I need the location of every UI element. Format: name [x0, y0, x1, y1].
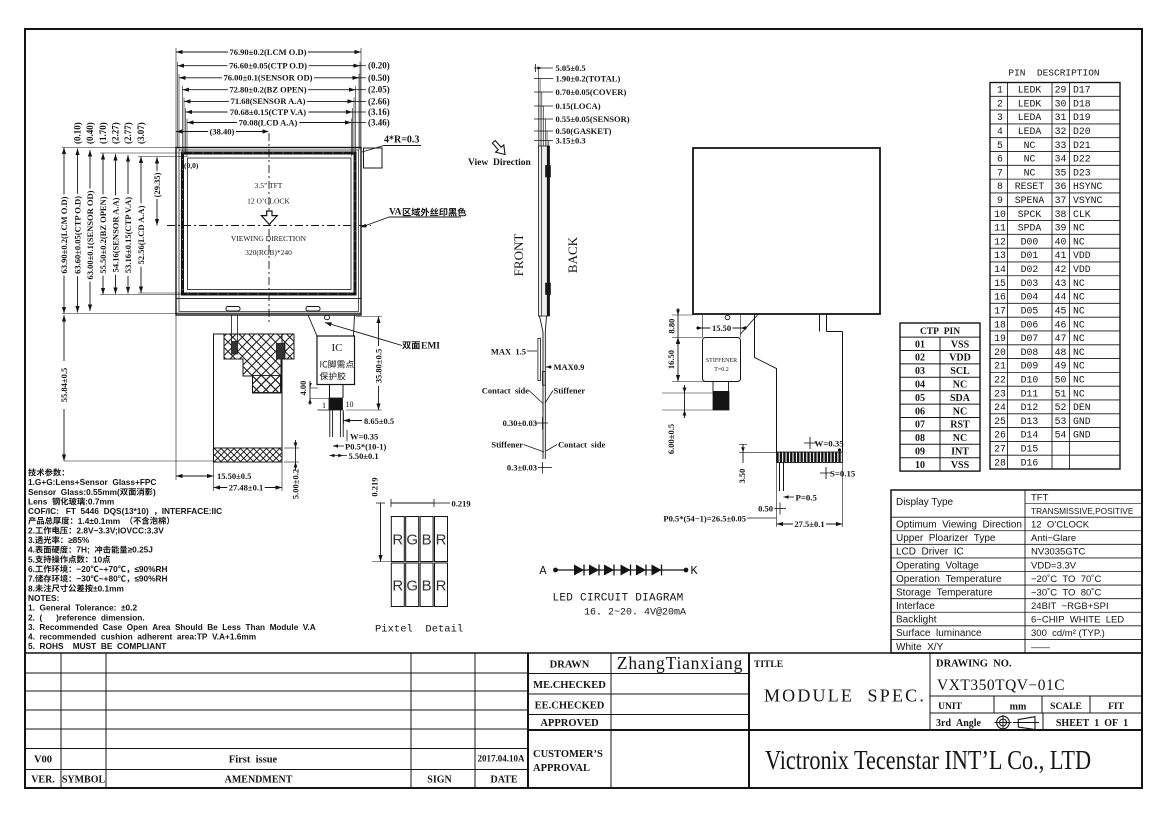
svg-text:NC: NC — [1073, 319, 1085, 330]
svg-text:Pixtel Detail: Pixtel Detail — [375, 624, 463, 636]
svg-text:1: 1 — [997, 85, 1003, 96]
svg-text:0.219: 0.219 — [452, 499, 471, 509]
svg-text:55.50±0.2(BZ OPEN): 55.50±0.2(BZ OPEN) — [98, 196, 108, 273]
svg-text:18: 18 — [994, 319, 1006, 330]
svg-text:BACK: BACK — [565, 236, 580, 273]
svg-text:24BIT −RGB+SPI: 24BIT −RGB+SPI — [1031, 601, 1109, 612]
svg-text:VSYNC: VSYNC — [1073, 195, 1103, 206]
svg-text:2017.04.10A: 2017.04.10A — [478, 754, 526, 764]
svg-text:NC: NC — [1073, 361, 1085, 372]
svg-text:Backlight: Backlight — [896, 615, 937, 626]
svg-text:SCALE: SCALE — [1050, 702, 1082, 712]
svg-text:1: 1 — [322, 401, 326, 410]
svg-text:TITLE: TITLE — [754, 660, 783, 670]
svg-text:VDD: VDD — [949, 353, 971, 364]
svg-text:HSYNC: HSYNC — [1073, 181, 1103, 192]
svg-text:≤90%RH: ≤90%RH — [134, 574, 167, 584]
svg-text:VA: VA — [389, 208, 402, 218]
svg-text:6−CHIP WHITE LED: 6−CHIP WHITE LED — [1031, 615, 1124, 626]
svg-text:NOTES:: NOTES: — [28, 593, 59, 603]
svg-text:(0,0): (0,0) — [184, 161, 199, 170]
svg-text:CUSTOMER’S: CUSTOMER’S — [533, 749, 603, 760]
svg-text:(0.50): (0.50) — [368, 73, 390, 83]
svg-text:12 O’CLOCK: 12 O’CLOCK — [1031, 520, 1090, 531]
svg-text:D14: D14 — [1021, 430, 1039, 441]
svg-text:P0.5*(54−1)=26.5±0.05: P0.5*(54−1)=26.5±0.05 — [663, 514, 746, 524]
svg-text:MAX 1.5: MAX 1.5 — [491, 347, 526, 357]
svg-text:T=0.2: T=0.2 — [714, 367, 729, 373]
svg-text:(29.35): (29.35) — [152, 172, 162, 197]
svg-text:7H;: 7H; — [76, 545, 94, 555]
svg-text:54.16(SENSOR A.A): 54.16(SENSOR A.A) — [111, 197, 121, 272]
svg-text:54: 54 — [1055, 430, 1067, 441]
svg-text:FIT: FIT — [1108, 702, 1125, 712]
svg-text:(38.40): (38.40) — [210, 126, 235, 136]
svg-text:LEDK: LEDK — [1018, 98, 1042, 109]
svg-text:D02: D02 — [1021, 264, 1039, 275]
svg-text:DATE: DATE — [490, 775, 517, 786]
svg-text:3.: 3. — [28, 535, 35, 545]
svg-text:20: 20 — [994, 347, 1006, 358]
svg-text:48: 48 — [1055, 347, 1067, 358]
svg-text:47: 47 — [1055, 333, 1067, 344]
svg-text:44: 44 — [1055, 292, 1067, 303]
svg-text:36: 36 — [1055, 181, 1067, 192]
svg-text:53.16±0.15(CTP V.A): 53.16±0.15(CTP V.A) — [123, 197, 133, 273]
svg-text:NV3035GTC: NV3035GTC — [1031, 547, 1086, 558]
svg-text:320(RGB)*240: 320(RGB)*240 — [245, 248, 292, 257]
svg-text:D01: D01 — [1021, 250, 1039, 261]
svg-text:INT: INT — [951, 447, 969, 458]
svg-text:P0.5*(10-1): P0.5*(10-1) — [345, 442, 386, 452]
svg-text:EMI: EMI — [421, 342, 440, 352]
svg-text:mm: mm — [1010, 702, 1027, 713]
svg-text:1.4±0.1mm: 1.4±0.1mm — [78, 516, 125, 526]
svg-text:Lens: Lens — [28, 496, 52, 506]
svg-text:S=0.15: S=0.15 — [830, 469, 856, 479]
svg-text:13: 13 — [994, 250, 1006, 261]
svg-text:≥85%: ≥85% — [68, 535, 90, 545]
svg-text:CLK: CLK — [1073, 209, 1091, 220]
svg-text:0.30±0.03: 0.30±0.03 — [503, 418, 537, 428]
svg-text:5.50±0.1: 5.50±0.1 — [349, 451, 379, 461]
svg-text:VSS: VSS — [951, 460, 970, 471]
svg-text:ME.CHECKED: ME.CHECKED — [533, 680, 606, 691]
svg-text:IC: IC — [332, 342, 343, 354]
svg-text:R: R — [392, 532, 403, 549]
svg-text:LED CIRCUIT DIAGRAM: LED CIRCUIT DIAGRAM — [552, 593, 683, 605]
svg-text:38: 38 — [1055, 209, 1067, 220]
svg-text:4. recommended cushion adhe: 4. recommended cushion adherent area:TP … — [28, 632, 256, 642]
svg-text:COF/IC: FT 5446 DQS(13*10): COF/IC: FT 5446 DQS(13*10) — [28, 506, 153, 516]
svg-text:LCD Driver IC: LCD Driver IC — [896, 547, 964, 558]
svg-text:D17: D17 — [1073, 85, 1091, 96]
svg-text:MAX0.9: MAX0.9 — [554, 362, 585, 372]
svg-text:3: 3 — [997, 112, 1003, 123]
svg-text:5: 5 — [997, 140, 1003, 151]
svg-text:0.55±0.05(SENSOR): 0.55±0.05(SENSOR) — [556, 114, 630, 124]
svg-text:02: 02 — [915, 353, 925, 364]
svg-text:22: 22 — [994, 374, 1006, 385]
svg-text:08: 08 — [915, 433, 925, 444]
svg-text:(3.16): (3.16) — [368, 107, 390, 117]
svg-text:D23: D23 — [1073, 167, 1091, 178]
svg-text:Display Type: Display Type — [896, 497, 954, 508]
svg-text:Contact side: Contact side — [558, 440, 605, 450]
svg-text:View Direction: View Direction — [468, 158, 532, 168]
svg-text:MODULE SPEC.: MODULE SPEC. — [764, 686, 926, 706]
svg-text:GND: GND — [1073, 430, 1091, 441]
svg-text:NC: NC — [1024, 154, 1036, 165]
svg-text:63.90±0.2(LCM O.D): 63.90±0.2(LCM O.D) — [59, 196, 69, 273]
svg-text:5.00±0.2: 5.00±0.2 — [291, 469, 301, 499]
svg-text:Stiffener: Stiffener — [491, 440, 523, 450]
svg-text:4*R=0.3: 4*R=0.3 — [384, 135, 419, 146]
svg-text:29: 29 — [1055, 85, 1067, 96]
svg-text:(0.20): (0.20) — [368, 61, 390, 71]
svg-text:LEDA: LEDA — [1018, 112, 1042, 123]
svg-text:Victronix Tecenstar INT’L Co.,: Victronix Tecenstar INT’L Co., LTD — [765, 745, 1091, 775]
svg-text:D00: D00 — [1021, 236, 1039, 247]
svg-text:PIN DESCRIPTION: PIN DESCRIPTION — [1008, 68, 1099, 79]
svg-text:5.05±0.5: 5.05±0.5 — [556, 63, 586, 73]
svg-text:R: R — [436, 577, 447, 594]
svg-text:01: 01 — [915, 339, 925, 350]
svg-text:51: 51 — [1055, 388, 1067, 399]
svg-text:2.: 2. — [28, 525, 35, 535]
svg-text:Interface: Interface — [896, 601, 935, 612]
svg-text:D06: D06 — [1021, 319, 1039, 330]
svg-text:30: 30 — [1055, 98, 1067, 109]
svg-text:04: 04 — [915, 380, 925, 391]
svg-text:0.70±0.05(COVER): 0.70±0.05(COVER) — [556, 87, 627, 97]
svg-text:76.90±0.2(LCM O.D): 76.90±0.2(LCM O.D) — [230, 47, 307, 57]
svg-text:VSS: VSS — [951, 339, 970, 350]
svg-text:≥0.25J: ≥0.25J — [128, 545, 154, 555]
svg-text:(2.77): (2.77) — [123, 122, 133, 144]
svg-text:1. General Tolerance: ±0.2: 1. General Tolerance: ±0.2 — [28, 603, 137, 613]
svg-text:VER.: VER. — [31, 775, 55, 786]
svg-text:B: B — [422, 577, 432, 594]
svg-text:VDD: VDD — [1073, 250, 1091, 261]
svg-text:NC: NC — [1073, 223, 1085, 234]
svg-text:FRONT: FRONT — [511, 234, 526, 277]
svg-text:2.8V−3.3V;IOVCC:3.3V: 2.8V−3.3V;IOVCC:3.3V — [76, 525, 164, 535]
svg-text:APPROVAL: APPROVAL — [533, 763, 590, 774]
svg-text:0.3±0.03: 0.3±0.03 — [507, 463, 537, 473]
svg-text:10: 10 — [346, 400, 354, 409]
svg-text:First issue: First issue — [229, 755, 278, 766]
svg-text:DRAWING NO.: DRAWING NO. — [936, 659, 1012, 670]
svg-text:TFT: TFT — [1031, 492, 1049, 503]
svg-text:): ) — [153, 487, 156, 497]
svg-text:D04: D04 — [1021, 292, 1039, 303]
svg-text:NC: NC — [1024, 167, 1036, 178]
svg-text:~+70: ~+70 — [99, 564, 118, 574]
svg-text:23: 23 — [994, 388, 1006, 399]
svg-text:K: K — [690, 564, 698, 578]
svg-text:71.68(SENSOR A.A): 71.68(SENSOR A.A) — [231, 96, 306, 106]
svg-text:27: 27 — [994, 443, 1006, 454]
svg-text:Surface luminance: Surface luminance — [896, 628, 982, 639]
svg-text:D11: D11 — [1021, 388, 1039, 399]
svg-text:RESET: RESET — [1015, 181, 1045, 192]
svg-text:SHEET 1 OF 1: SHEET 1 OF 1 — [1056, 718, 1128, 729]
svg-text:SIGN: SIGN — [427, 775, 452, 786]
svg-text:SPCK: SPCK — [1018, 209, 1042, 220]
svg-text:07: 07 — [915, 420, 925, 431]
svg-text:17: 17 — [994, 305, 1006, 316]
svg-text:10: 10 — [93, 554, 103, 564]
svg-text:(1.70): (1.70) — [98, 122, 108, 144]
svg-text:LEDA: LEDA — [1018, 126, 1042, 137]
svg-text:Operating Voltage: Operating Voltage — [896, 560, 979, 571]
svg-text:0.219: 0.219 — [370, 477, 380, 496]
svg-text:W=0.35: W=0.35 — [350, 432, 378, 442]
svg-text:NC: NC — [1073, 347, 1085, 358]
svg-text:4.: 4. — [28, 545, 35, 555]
svg-text:NC: NC — [1073, 278, 1085, 289]
svg-text:25: 25 — [994, 416, 1006, 427]
svg-text:3. Recommended Case Open A: 3. Recommended Case Open Area Should Be … — [28, 623, 316, 632]
svg-text:6.00±0.5: 6.00±0.5 — [666, 424, 676, 454]
svg-text:D15: D15 — [1021, 443, 1039, 454]
svg-text:LEDK: LEDK — [1018, 85, 1042, 96]
svg-text:26: 26 — [994, 430, 1006, 441]
svg-text:70.68±0.15(CTP V.A): 70.68±0.15(CTP V.A) — [230, 107, 306, 117]
svg-text:09: 09 — [915, 447, 925, 458]
svg-text:EE.CHECKED: EE.CHECKED — [535, 701, 605, 712]
svg-text:50: 50 — [1055, 374, 1067, 385]
svg-text:24: 24 — [994, 402, 1006, 413]
svg-text:8.: 8. — [28, 583, 35, 593]
svg-text:A: A — [539, 564, 547, 578]
svg-text:TRANSMISSIVE,POSITIVE: TRANSMISSIVE,POSITIVE — [1031, 506, 1134, 516]
svg-text:5.: 5. — [28, 554, 35, 564]
svg-text:APPROVED: APPROVED — [540, 718, 599, 729]
svg-text:Storage Temperature: Storage Temperature — [896, 587, 993, 598]
svg-text:GND: GND — [1073, 416, 1091, 427]
svg-text:6.: 6. — [28, 564, 35, 574]
svg-text:31: 31 — [1055, 112, 1067, 123]
svg-text:(2.27): (2.27) — [111, 122, 121, 144]
svg-text:STIFFENER: STIFFENER — [706, 358, 737, 364]
svg-text:16.50: 16.50 — [666, 350, 676, 369]
svg-text:D21: D21 — [1073, 140, 1091, 151]
svg-text:03: 03 — [915, 366, 925, 377]
svg-text:B: B — [422, 532, 432, 549]
svg-text:−30: −30 — [76, 574, 90, 584]
svg-text:(2.66): (2.66) — [368, 96, 390, 106]
svg-text:41: 41 — [1055, 250, 1067, 261]
svg-text:05: 05 — [915, 393, 925, 404]
svg-text:46: 46 — [1055, 319, 1067, 330]
svg-text:D07: D07 — [1021, 333, 1039, 344]
svg-text:D10: D10 — [1021, 374, 1039, 385]
svg-text:VXT350TQV−01C: VXT350TQV−01C — [937, 677, 1065, 694]
svg-text:D18: D18 — [1073, 98, 1091, 109]
svg-text:0.15(LOCA): 0.15(LOCA) — [556, 101, 601, 111]
svg-text:CTP PIN: CTP PIN — [920, 327, 960, 337]
svg-text:06: 06 — [915, 406, 925, 417]
svg-text:1.90±0.2(TOTAL): 1.90±0.2(TOTAL) — [556, 74, 621, 84]
svg-text:52.56(LCD A.A): 52.56(LCD A.A) — [136, 205, 146, 264]
svg-text:D08: D08 — [1021, 347, 1039, 358]
svg-text:4: 4 — [997, 126, 1003, 137]
svg-text:32: 32 — [1055, 126, 1067, 137]
svg-text:NC: NC — [1073, 388, 1085, 399]
svg-text:45: 45 — [1055, 305, 1067, 316]
svg-text:27.48±0.1: 27.48±0.1 — [229, 483, 263, 493]
svg-text:8: 8 — [997, 181, 1003, 192]
svg-text:15: 15 — [994, 278, 1006, 289]
svg-text:V00: V00 — [34, 755, 52, 766]
svg-text:15.50±0.5: 15.50±0.5 — [217, 471, 251, 481]
svg-text:7.: 7. — [28, 574, 35, 584]
svg-text:Stiffener: Stiffener — [554, 386, 586, 396]
svg-text:D20: D20 — [1073, 126, 1091, 137]
svg-text:Anti−Glare: Anti−Glare — [1031, 533, 1076, 544]
svg-text:−20: −20 — [76, 564, 90, 574]
svg-text:15.50: 15.50 — [712, 323, 731, 333]
svg-text:SDA: SDA — [950, 393, 971, 404]
svg-text:SPENA: SPENA — [1015, 195, 1045, 206]
svg-text:(0.40): (0.40) — [85, 122, 95, 144]
svg-text:INTERFACE:IIC: INTERFACE:IIC — [162, 506, 222, 516]
svg-text:6: 6 — [997, 154, 1003, 165]
svg-text:(2.05): (2.05) — [368, 85, 390, 95]
svg-text:14: 14 — [994, 264, 1006, 275]
svg-text:AMENDMENT: AMENDMENT — [225, 775, 293, 786]
svg-text:16: 16 — [994, 292, 1006, 303]
svg-text:NC: NC — [1073, 305, 1085, 316]
svg-text:55.84±0.5: 55.84±0.5 — [59, 368, 69, 402]
svg-text:3rd Angle: 3rd Angle — [936, 718, 982, 729]
svg-text:8.80: 8.80 — [667, 319, 677, 334]
svg-text:D13: D13 — [1021, 416, 1039, 427]
svg-text:3.5” TFT: 3.5” TFT — [255, 181, 283, 190]
svg-text:63.00±0.1(SENSOR OD): 63.00±0.1(SENSOR OD) — [85, 190, 95, 279]
svg-text:D03: D03 — [1021, 278, 1039, 289]
svg-text:(3.07): (3.07) — [136, 122, 146, 144]
svg-text:VDD=3.3V: VDD=3.3V — [1031, 560, 1077, 571]
svg-text:300 cd/m² (TYP.): 300 cd/m² (TYP.) — [1031, 628, 1105, 639]
svg-text:12: 12 — [994, 236, 1006, 247]
svg-text:White X/Y: White X/Y — [896, 642, 944, 653]
svg-text:W=0.35: W=0.35 — [815, 439, 845, 449]
svg-text:−20˚C TO 70˚C: −20˚C TO 70˚C — [1031, 574, 1101, 585]
svg-text:SYMBOL: SYMBOL — [62, 775, 106, 786]
svg-text:(3.46): (3.46) — [368, 118, 390, 128]
svg-text:DRAWN: DRAWN — [550, 660, 590, 671]
svg-text:0.50(GASKET): 0.50(GASKET) — [556, 126, 612, 136]
svg-text:4.00: 4.00 — [298, 381, 308, 396]
svg-text:40: 40 — [1055, 236, 1067, 247]
svg-text:DEN: DEN — [1073, 402, 1091, 413]
svg-text:3.15±0.3: 3.15±0.3 — [556, 136, 586, 146]
svg-text:43: 43 — [1055, 278, 1067, 289]
svg-text::0.7mm: :0.7mm — [85, 496, 114, 506]
svg-text:≤90%RH: ≤90%RH — [134, 564, 167, 574]
svg-text:NC: NC — [1073, 333, 1085, 344]
svg-text:52: 52 — [1055, 402, 1067, 413]
svg-text:16. 2~20. 4V@20mA: 16. 2~20. 4V@20mA — [584, 607, 686, 619]
svg-text:35: 35 — [1055, 167, 1067, 178]
svg-text:Contact side: Contact side — [482, 386, 529, 396]
svg-text:39: 39 — [1055, 223, 1067, 234]
svg-text:RST: RST — [950, 420, 970, 431]
svg-text:D12: D12 — [1021, 402, 1039, 413]
svg-text:Sensor Glass:0.55mm(: Sensor Glass:0.55mm( — [28, 487, 120, 497]
svg-text:R: R — [436, 532, 447, 549]
svg-text:76.60±0.05(CTP O.D): 76.60±0.05(CTP O.D) — [229, 61, 307, 71]
svg-text:49: 49 — [1055, 361, 1067, 372]
svg-text:−30˚C TO 80˚C: −30˚C TO 80˚C — [1031, 587, 1101, 598]
svg-text:Optimum Viewing Direction: Optimum Viewing Direction — [896, 520, 1022, 531]
svg-text:D22: D22 — [1073, 154, 1091, 165]
svg-text:11: 11 — [994, 223, 1006, 234]
svg-text:SPDA: SPDA — [1018, 223, 1042, 234]
svg-text:5. ROHS MUST BE COMPLIAN: 5. ROHS MUST BE COMPLIANT — [28, 641, 166, 651]
svg-text:19: 19 — [994, 333, 1006, 344]
svg-text:Upper Ploarizer Type: Upper Ploarizer Type — [896, 533, 996, 544]
svg-text:53: 53 — [1055, 416, 1067, 427]
svg-text:D09: D09 — [1021, 361, 1039, 372]
svg-text:D05: D05 — [1021, 305, 1039, 316]
svg-text:37: 37 — [1055, 195, 1067, 206]
svg-text:42: 42 — [1055, 264, 1067, 275]
svg-text:UNIT: UNIT — [938, 702, 962, 712]
svg-text:76.00±0.1(SENSOR OD): 76.00±0.1(SENSOR OD) — [224, 73, 313, 83]
svg-text:28: 28 — [994, 457, 1006, 468]
svg-text:70.08(LCD A.A): 70.08(LCD A.A) — [239, 117, 298, 127]
svg-text:27.5±0.1: 27.5±0.1 — [794, 519, 824, 529]
svg-text:7: 7 — [997, 167, 1003, 178]
svg-text:NC: NC — [1073, 292, 1085, 303]
svg-text:——: —— — [1031, 642, 1051, 653]
svg-text:±0.1mm: ±0.1mm — [93, 583, 124, 593]
svg-text:VDD: VDD — [1073, 264, 1091, 275]
svg-text:NC: NC — [1073, 236, 1085, 247]
svg-text:VIEWING DIRECTION: VIEWING DIRECTION — [231, 234, 307, 243]
svg-text:8.65±0.5: 8.65±0.5 — [364, 416, 394, 426]
svg-text:ZhangTianxiang: ZhangTianxiang — [617, 653, 743, 673]
svg-text:(0.10): (0.10) — [73, 122, 83, 144]
svg-text:33: 33 — [1055, 140, 1067, 151]
svg-text:3.50: 3.50 — [737, 469, 747, 484]
svg-text:D16: D16 — [1021, 457, 1039, 468]
svg-text:12 O’CLOCK: 12 O’CLOCK — [247, 197, 290, 206]
svg-text:G: G — [406, 532, 418, 549]
svg-text:NC: NC — [953, 433, 967, 444]
svg-text:10: 10 — [994, 209, 1006, 220]
svg-text:NC: NC — [1073, 374, 1085, 385]
svg-text:2: 2 — [997, 98, 1003, 109]
svg-text:D19: D19 — [1073, 112, 1091, 123]
svg-text:34: 34 — [1055, 154, 1067, 165]
svg-text:R: R — [392, 577, 403, 594]
svg-text:0.50: 0.50 — [758, 504, 773, 514]
svg-text:~+80: ~+80 — [99, 574, 118, 584]
svg-text:10: 10 — [915, 460, 925, 471]
svg-text:NC: NC — [953, 406, 967, 417]
svg-text:P=0.5: P=0.5 — [796, 493, 818, 503]
svg-text:21: 21 — [994, 361, 1006, 372]
svg-text:NC: NC — [1024, 140, 1036, 151]
svg-text:Operation Temperature: Operation Temperature — [896, 574, 1002, 585]
svg-text:G: G — [406, 577, 418, 594]
svg-text:SCL: SCL — [950, 366, 970, 377]
